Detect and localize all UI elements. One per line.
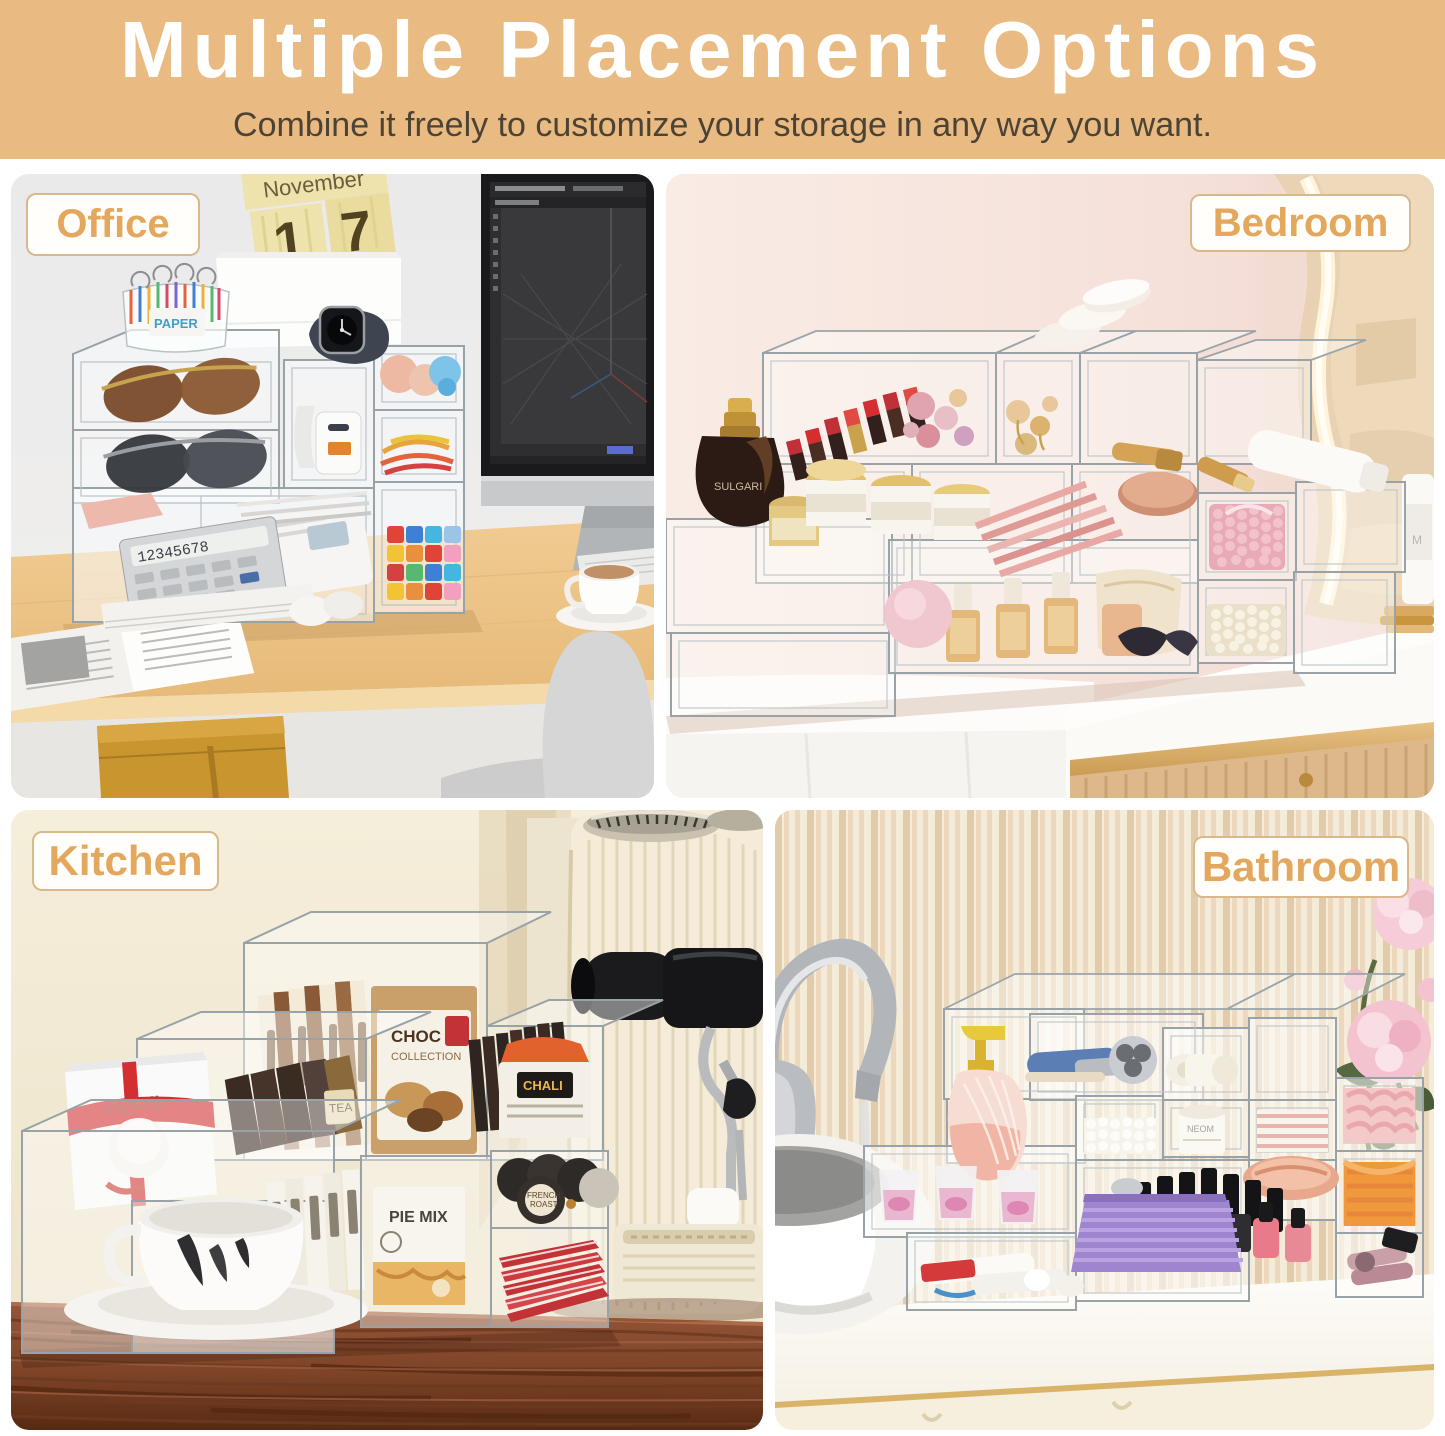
svg-text:SULGARI: SULGARI: [714, 481, 762, 493]
svg-text:PAPER: PAPER: [154, 316, 198, 331]
svg-text:M: M: [1412, 533, 1422, 547]
svg-text:FRENCH: FRENCH: [527, 1191, 561, 1200]
svg-text:ROAST: ROAST: [530, 1200, 558, 1209]
svg-text:CHALI: CHALI: [523, 1078, 563, 1093]
svg-text:PIE MIX: PIE MIX: [389, 1209, 448, 1226]
svg-text:COLLECTION: COLLECTION: [391, 1051, 461, 1063]
svg-text:NEOM: NEOM: [1187, 1124, 1214, 1134]
svg-text:CHOC: CHOC: [391, 1027, 441, 1046]
